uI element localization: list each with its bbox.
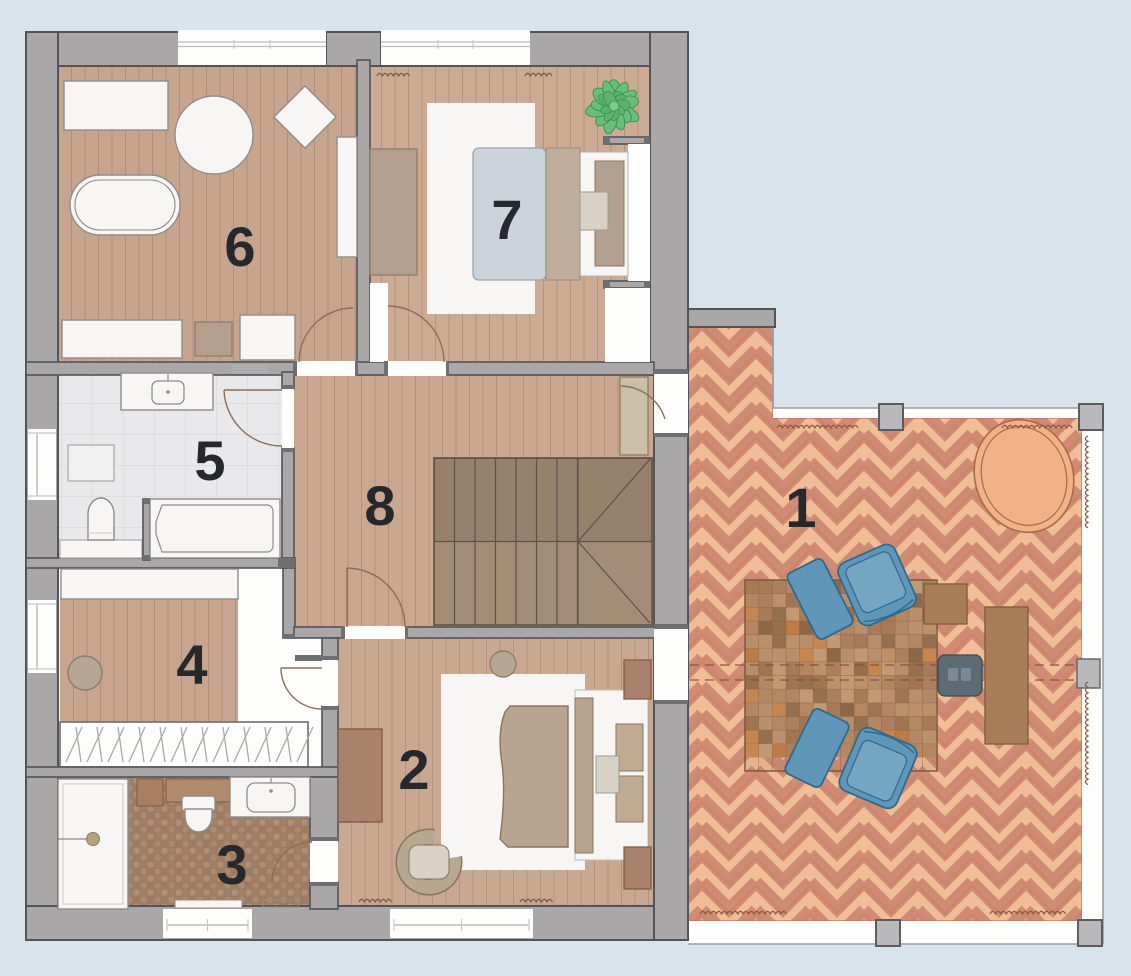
- svg-text:5: 5: [194, 429, 225, 492]
- svg-text:8: 8: [364, 474, 395, 537]
- svg-text:1: 1: [785, 476, 816, 539]
- svg-text:7: 7: [491, 188, 522, 251]
- svg-text:3: 3: [216, 833, 247, 896]
- svg-text:4: 4: [176, 633, 207, 696]
- svg-text:2: 2: [398, 738, 429, 801]
- svg-text:6: 6: [224, 215, 255, 278]
